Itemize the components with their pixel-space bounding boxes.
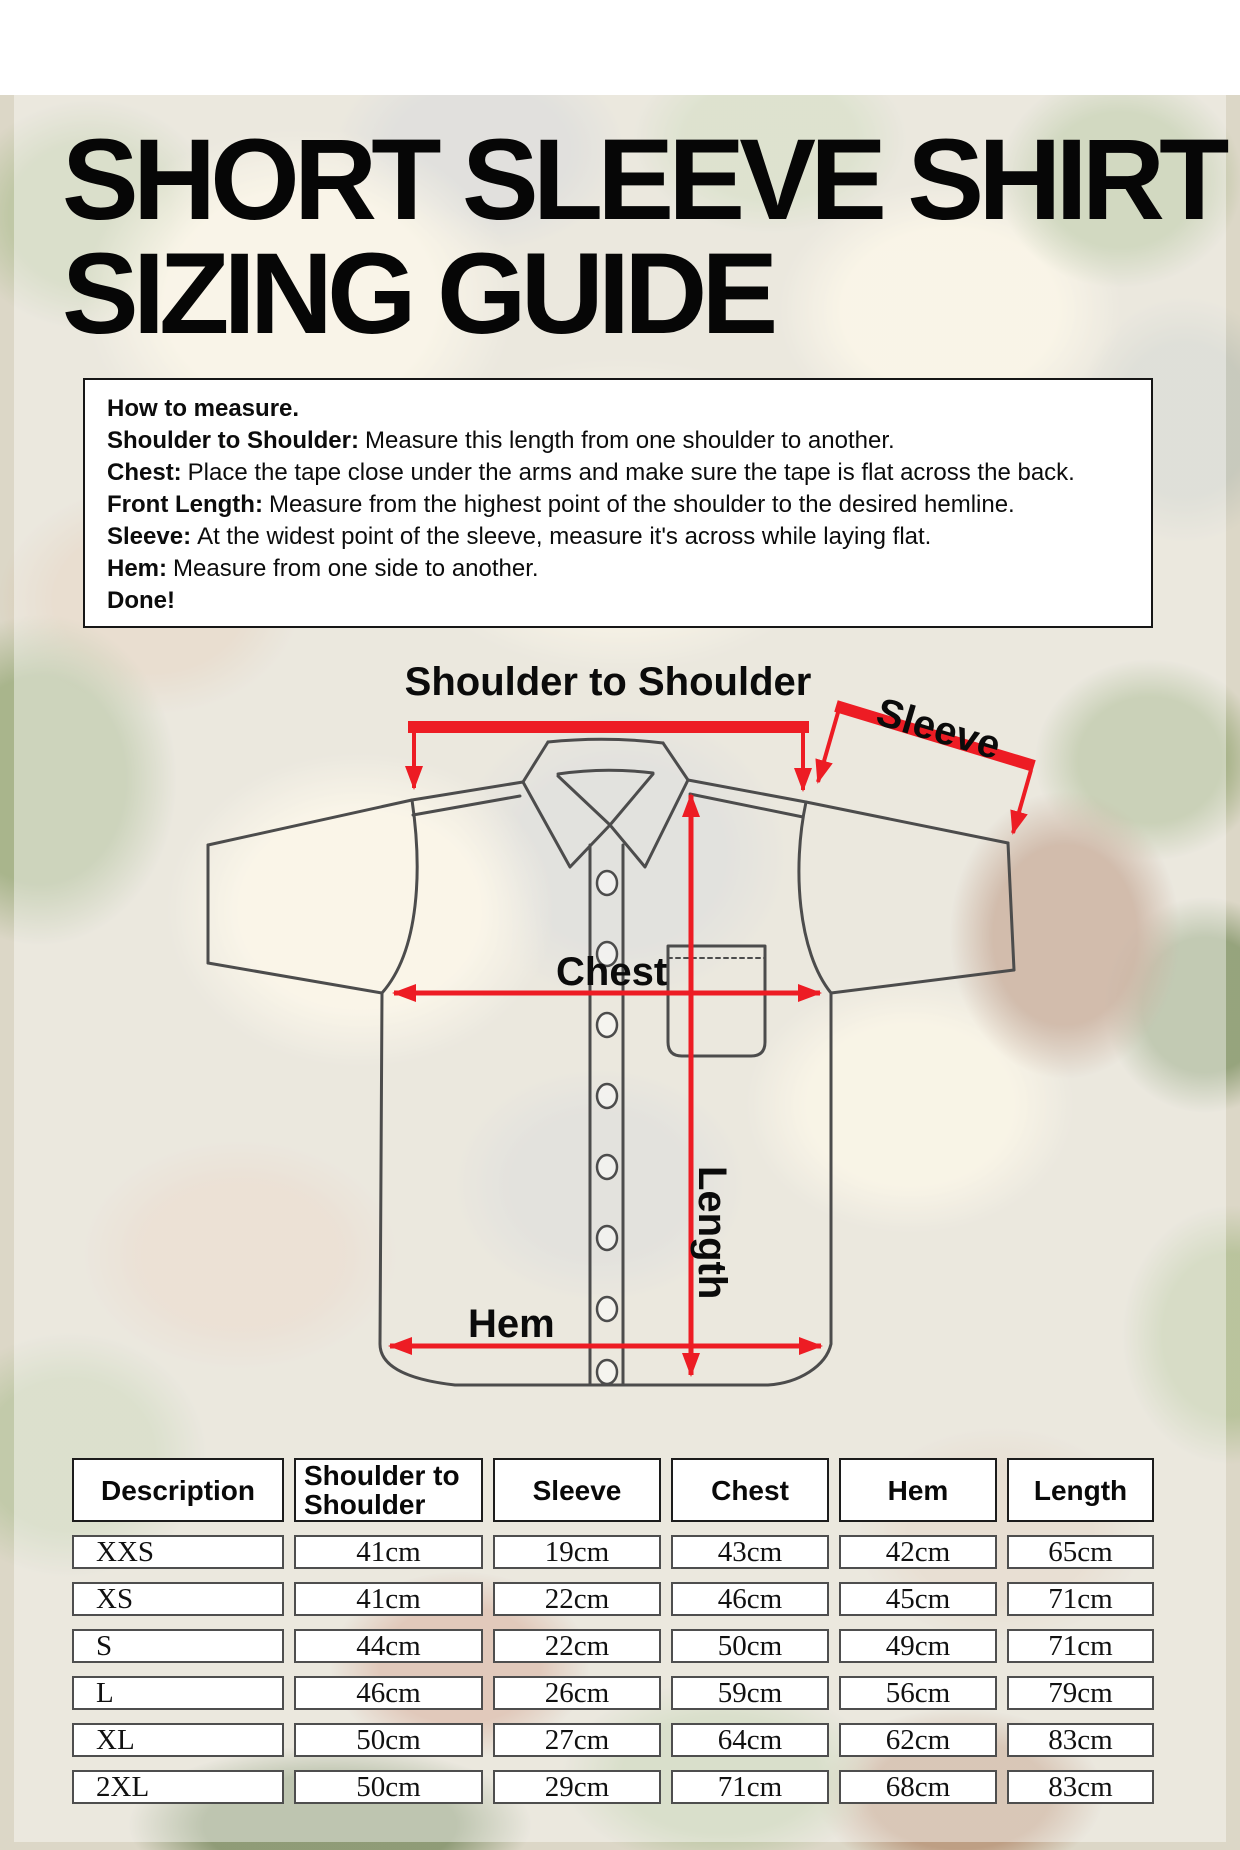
size-2xl: 2XL (72, 1770, 284, 1804)
length-label: Length (689, 1166, 734, 1299)
l-chest: 59cm (671, 1676, 829, 1710)
2xl-sleeve: 29cm (493, 1770, 661, 1804)
instruction-label: Chest: (107, 459, 182, 486)
instruction-text: At the widest point of the sleeve, measu… (197, 523, 931, 550)
instruction-label: Sleeve: (107, 523, 191, 550)
xs-sleeve: 22cm (493, 1582, 661, 1616)
xl-length: 83cm (1007, 1723, 1154, 1757)
instruction-line: Front Length:Measure from the highest po… (107, 489, 1129, 521)
instruction-label: How to measure. (107, 395, 299, 422)
instruction-label: Front Length: (107, 491, 263, 518)
instruction-line: Shoulder to Shoulder:Measure this length… (107, 425, 1129, 457)
xxs-sleeve: 19cm (493, 1535, 661, 1569)
xxs-chest: 43cm (671, 1535, 829, 1569)
size-xl: XL (72, 1723, 284, 1757)
instruction-line: Hem:Measure from one side to another. (107, 553, 1129, 585)
xs-chest: 46cm (671, 1582, 829, 1616)
xs-shoulder: 41cm (294, 1582, 483, 1616)
xs-hem: 45cm (839, 1582, 997, 1616)
instruction-text: Place the tape close under the arms and … (188, 459, 1075, 486)
xl-hem: 62cm (839, 1723, 997, 1757)
sizing-table: Description Shoulder to Shoulder Sleeve … (72, 1458, 1154, 1804)
xl-shoulder: 50cm (294, 1723, 483, 1757)
s-length: 71cm (1007, 1629, 1154, 1663)
l-length: 79cm (1007, 1676, 1154, 1710)
l-sleeve: 26cm (493, 1676, 661, 1710)
xxs-length: 65cm (1007, 1535, 1154, 1569)
instruction-line: Chest:Place the tape close under the arm… (107, 457, 1129, 489)
instruction-text: Measure from one side to another. (173, 555, 539, 582)
2xl-length: 83cm (1007, 1770, 1154, 1804)
instruction-label: Hem: (107, 555, 167, 582)
instruction-label: Shoulder to Shoulder: (107, 427, 359, 454)
size-l: L (72, 1676, 284, 1710)
s-sleeve: 22cm (493, 1629, 661, 1663)
l-hem: 56cm (839, 1676, 997, 1710)
page-title-line1: SHORT SLEEVE SHIRT (62, 124, 1224, 238)
sizing-guide-page: SHORT SLEEVE SHIRT SIZING GUIDE How to m… (0, 0, 1240, 1850)
how-to-measure-box: How to measure. Shoulder to Shoulder:Mea… (83, 378, 1153, 628)
header-hem: Hem (839, 1458, 997, 1522)
l-shoulder: 46cm (294, 1676, 483, 1710)
size-xxs: XXS (72, 1535, 284, 1569)
header-length: Length (1007, 1458, 1154, 1522)
xs-length: 71cm (1007, 1582, 1154, 1616)
hem-label: Hem (468, 1302, 555, 1347)
chest-label: Chest (556, 950, 667, 995)
xxs-shoulder: 41cm (294, 1535, 483, 1569)
size-xs: XS (72, 1582, 284, 1616)
shoulder-to-shoulder-label: Shoulder to Shoulder (368, 660, 848, 705)
instruction-label: Done! (107, 587, 175, 614)
instruction-line: Done! (107, 585, 1129, 617)
s-chest: 50cm (671, 1629, 829, 1663)
header-sleeve: Sleeve (493, 1458, 661, 1522)
instruction-line: Sleeve:At the widest point of the sleeve… (107, 521, 1129, 553)
s-shoulder: 44cm (294, 1629, 483, 1663)
xxs-hem: 42cm (839, 1535, 997, 1569)
instruction-text: Measure from the highest point of the sh… (269, 491, 1015, 518)
2xl-shoulder: 50cm (294, 1770, 483, 1804)
page-title-line2: SIZING GUIDE (62, 238, 1224, 352)
instruction-text: Measure this length from one shoulder to… (365, 427, 895, 454)
xl-sleeve: 27cm (493, 1723, 661, 1757)
header-chest: Chest (671, 1458, 829, 1522)
instruction-line: How to measure. (107, 393, 1129, 425)
s-hem: 49cm (839, 1629, 997, 1663)
header-shoulder-to-shoulder: Shoulder to Shoulder (294, 1458, 483, 1522)
page-title: SHORT SLEEVE SHIRT SIZING GUIDE (62, 124, 1224, 352)
2xl-chest: 71cm (671, 1770, 829, 1804)
2xl-hem: 68cm (839, 1770, 997, 1804)
header-description: Description (72, 1458, 284, 1522)
xl-chest: 64cm (671, 1723, 829, 1757)
size-s: S (72, 1629, 284, 1663)
